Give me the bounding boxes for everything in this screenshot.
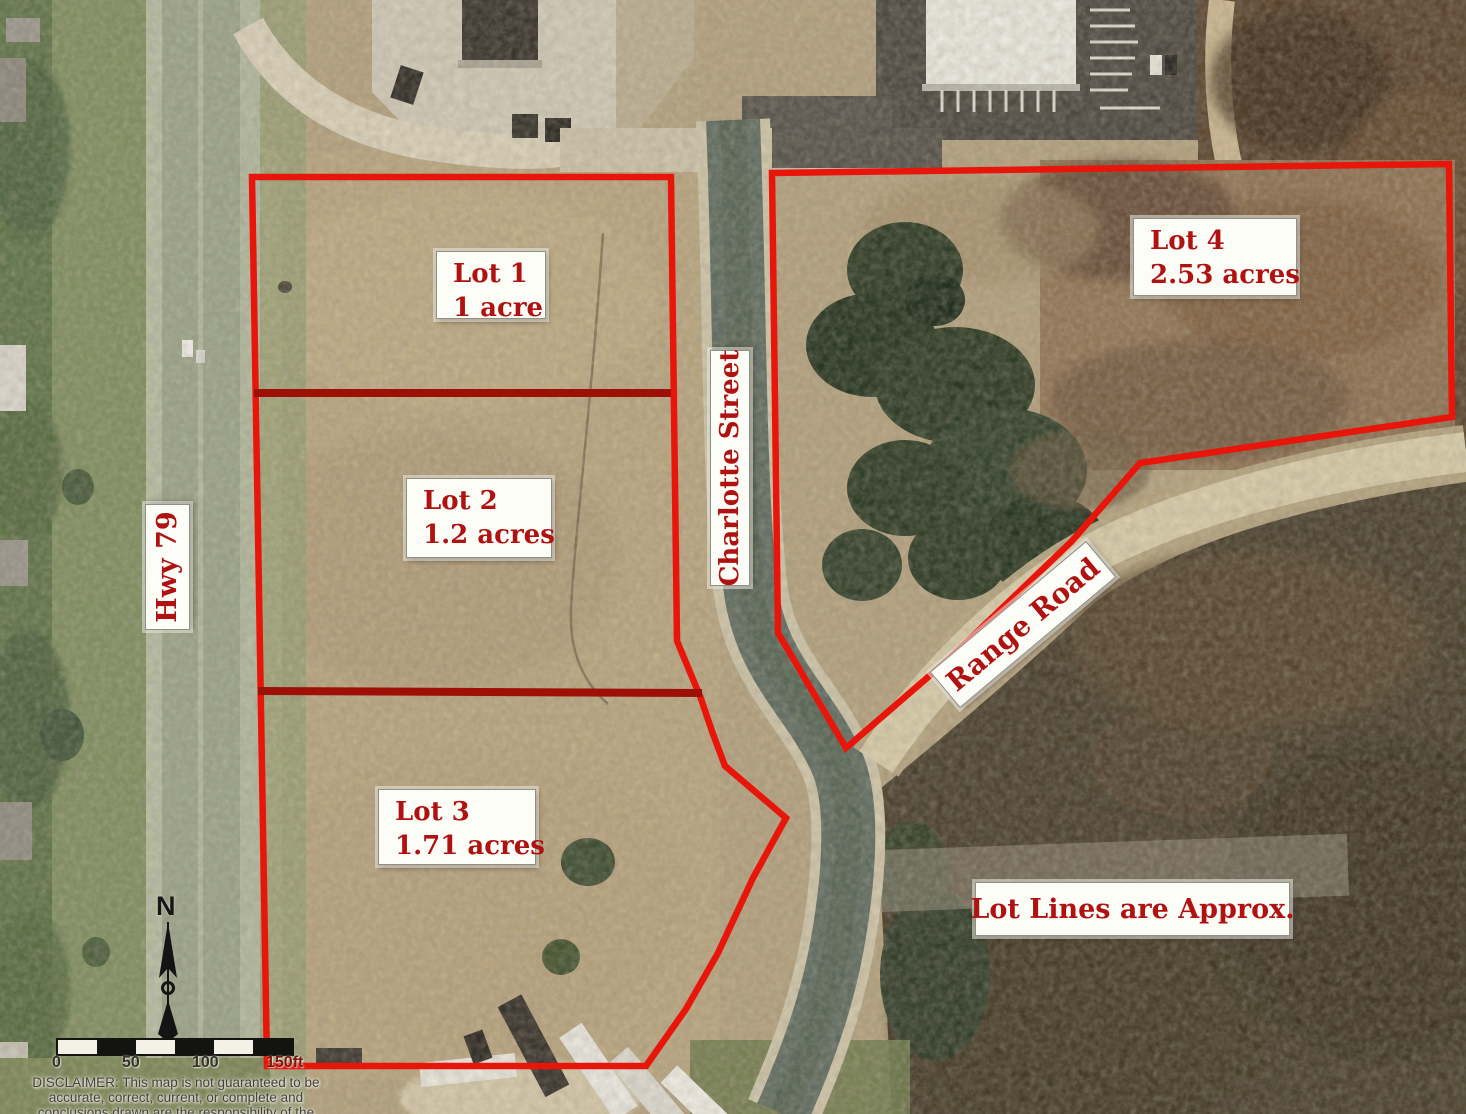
disclaimer-line: conclusions drawn are the responsibility…	[28, 1105, 324, 1114]
scale-tick: 100	[192, 1054, 219, 1072]
lot-2-label: Lot 2 1.2 acres	[406, 478, 552, 558]
scale-segment	[97, 1040, 136, 1054]
scale-segment	[253, 1040, 292, 1054]
lot-4-label: Lot 4 2.53 acres	[1133, 218, 1297, 296]
lot-1-name: Lot 1	[453, 258, 535, 292]
scale-segment	[136, 1040, 175, 1054]
lot-4-name: Lot 4	[1150, 225, 1286, 259]
charlotte-street-label: Charlotte Street	[710, 350, 750, 586]
scale-segment	[214, 1040, 253, 1054]
scale-bar	[56, 1038, 294, 1056]
lot-2-3-divider	[258, 691, 702, 693]
lot-3-label: Lot 3 1.71 acres	[378, 789, 536, 865]
north-arrow-label: N	[156, 891, 176, 922]
scale-tick: 50	[122, 1054, 140, 1072]
disclaimer-text: DISCLAIMER: This map is not guaranteed t…	[28, 1075, 324, 1114]
scale-tick: 0	[52, 1054, 61, 1072]
scale-tick: 150ft	[266, 1054, 303, 1072]
lot-2-area: 1.2 acres	[423, 519, 541, 553]
lot-1-area: 1 acre	[453, 292, 535, 326]
hwy-79-label-text: Hwy 79	[152, 511, 183, 622]
lot-lines-note: Lot Lines are Approx.	[975, 882, 1290, 936]
disclaimer-line: accurate, correct, current, or complete …	[28, 1090, 324, 1105]
scale-segment	[175, 1040, 214, 1054]
scale-segment	[58, 1040, 97, 1054]
lot-2-name: Lot 2	[423, 485, 541, 519]
lot-4-area: 2.53 acres	[1150, 259, 1286, 293]
disclaimer-line: DISCLAIMER: This map is not guaranteed t…	[28, 1075, 324, 1090]
hwy-79-label: Hwy 79	[145, 504, 190, 630]
lot-1-label: Lot 1 1 acre	[436, 251, 546, 319]
lot-3-name: Lot 3	[395, 796, 525, 830]
lot-3-area: 1.71 acres	[395, 830, 525, 864]
charlotte-street-label-text: Charlotte Street	[715, 350, 745, 587]
lot-lines-note-text: Lot Lines are Approx.	[970, 894, 1294, 925]
aerial-lot-map: Lot 1 1 acre Lot 2 1.2 acres Lot 3 1.71 …	[0, 0, 1466, 1114]
